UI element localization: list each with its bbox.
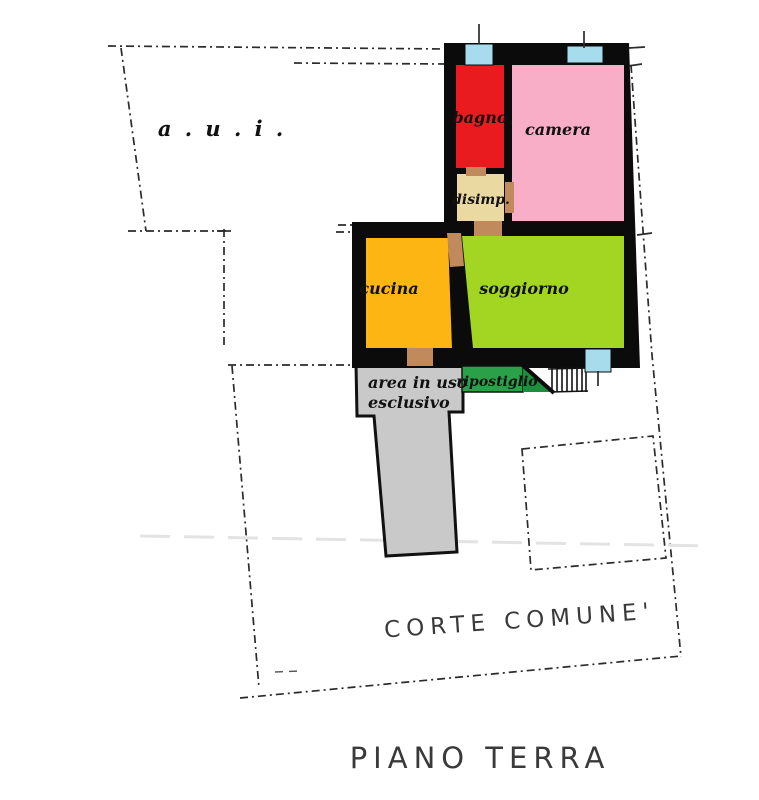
label-piano-terra: PIANO TERRA [350,741,611,775]
boundary-tick-wallcorner [628,64,642,66]
label-ripostiglio: ripostiglio [456,374,537,390]
label-exclusive-area-line2: esclusivo [368,393,450,412]
window-soggiorno [585,349,611,372]
scan-artifact-dash [275,671,300,672]
stairs-hatch [548,367,588,392]
label-camera: camera [525,120,591,139]
boundary-top-line [108,46,447,49]
boundary-top-line-2 [294,63,445,64]
floor-plan-scan: a . u . i . bagno camera disimp. cucina … [0,0,759,800]
window-bagno [465,44,493,65]
boundary-tick-topright [629,47,645,48]
label-corte-comune: CORTE COMUNE' [383,599,655,644]
adjacent-building-outline [522,436,666,570]
window-camera [567,46,603,63]
door-cucina-exterior [407,348,433,366]
label-soggiorno: soggiorno [478,279,569,298]
label-cucina: cucina [359,279,418,298]
floor-plan-svg: a . u . i . bagno camera disimp. cucina … [0,0,759,800]
door-disimpegno-soggiorno [474,221,502,236]
boundary-left-slant [121,48,146,231]
boundary-lower-vertical [232,366,259,688]
label-aui: a . u . i . [158,116,286,141]
boundary-bottom-line [240,656,681,698]
door-bagno-disimpegno [466,167,486,176]
room-camera [512,65,624,221]
label-disimpegno: disimp. [452,192,510,208]
label-exclusive-area-line1: area in uso [368,373,468,392]
label-bagno: bagno [452,108,507,127]
boundary-tick-midright [637,233,652,235]
